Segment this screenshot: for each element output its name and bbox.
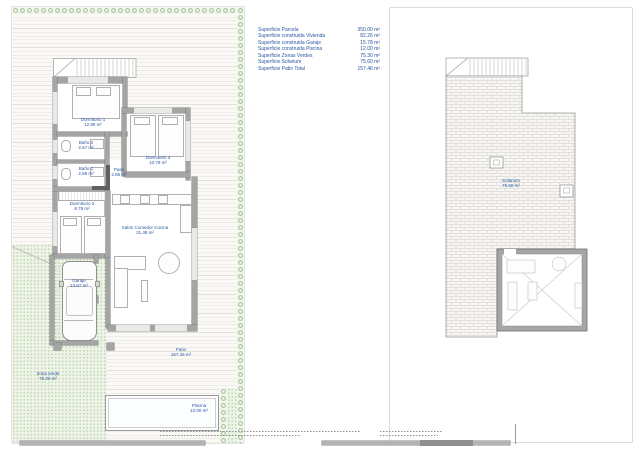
label-dormitorio-2: Dormitorio 2 8.78 m² (62, 201, 102, 212)
label-solarium: Solarium 75.60 m² (492, 178, 530, 189)
label-paso: Paso 2.85 m² (106, 167, 132, 178)
label-piscina: Piscina 12.00 m² (182, 403, 216, 414)
fine-print-line (380, 435, 438, 436)
car-rear-window (64, 320, 93, 321)
window (134, 108, 172, 113)
appliance (158, 195, 168, 204)
window (68, 77, 108, 83)
pillow (87, 218, 101, 226)
fine-print-line (160, 431, 360, 432)
fine-print-line (160, 435, 300, 436)
fence-post (107, 343, 114, 350)
fence-post (54, 343, 61, 350)
pillow (162, 117, 178, 125)
wardrobe (58, 191, 106, 201)
fine-print-line (380, 431, 443, 432)
wall (57, 132, 127, 136)
side-table (528, 282, 537, 300)
kitchen-sink (140, 195, 150, 204)
tv-unit (141, 280, 148, 302)
plot-boundary-wall (20, 441, 205, 445)
roof-vent (490, 157, 503, 168)
plot-boundary-wall (322, 441, 510, 445)
hob (120, 195, 130, 204)
roof-vent (560, 185, 573, 197)
roof-stairs (446, 58, 528, 76)
wall (125, 172, 190, 177)
fridge-column (180, 205, 192, 233)
window (192, 228, 197, 280)
pillow (63, 218, 77, 226)
window (116, 325, 150, 331)
round-table (552, 257, 566, 271)
gate-segment (420, 440, 473, 446)
label-garaje: Garaje 13.67 m² (62, 278, 96, 289)
hedge-top (12, 7, 244, 14)
window (53, 92, 57, 124)
window (53, 140, 57, 153)
dining-table (158, 252, 180, 274)
label-dormitorio-1: Dormitorio 1 12.98 m² (73, 117, 113, 128)
solarium-plan (440, 50, 592, 350)
label-bano-2: Baño 2 2.67 m² (68, 140, 104, 151)
legend-row: Superficie Patio Total157.46 m² (258, 66, 380, 72)
sun-lounger (507, 260, 535, 273)
bulkhead-door-opening (504, 249, 516, 255)
window (53, 166, 57, 179)
exterior-stairs (53, 58, 137, 78)
pillow (134, 117, 150, 125)
label-patio: Patio 157.46 m² (163, 347, 199, 358)
sun-lounger (508, 282, 517, 310)
label-salon-comedor-cocina: Salón Comedor Cocina 31.48 m² (118, 225, 172, 236)
window (155, 325, 187, 331)
floorplan-drawing: Dormitorio 1 12.98 m² Baño 2 2.67 m² Dor… (0, 0, 640, 450)
label-bano-1: Baño 1 2.58 m² (68, 166, 104, 177)
label-zona-verde: Zona verde 75.30 m² (30, 371, 66, 382)
sofa (114, 268, 128, 308)
car-roof (66, 286, 93, 316)
boundary-tick (515, 424, 516, 444)
pillow (76, 87, 91, 96)
window (53, 212, 57, 246)
label-dormitorio-3: Dormitorio 3 10.79 m² (138, 155, 178, 166)
surface-legend: Superficie Parcela350.00 m² Superficie c… (258, 27, 380, 72)
wall (106, 258, 110, 328)
wall (50, 255, 54, 345)
window (186, 121, 190, 161)
hedge-right (237, 7, 244, 443)
bench (575, 283, 582, 308)
wall (57, 160, 109, 163)
pillow (96, 87, 111, 96)
wall (122, 108, 126, 176)
door-frame (92, 186, 110, 190)
